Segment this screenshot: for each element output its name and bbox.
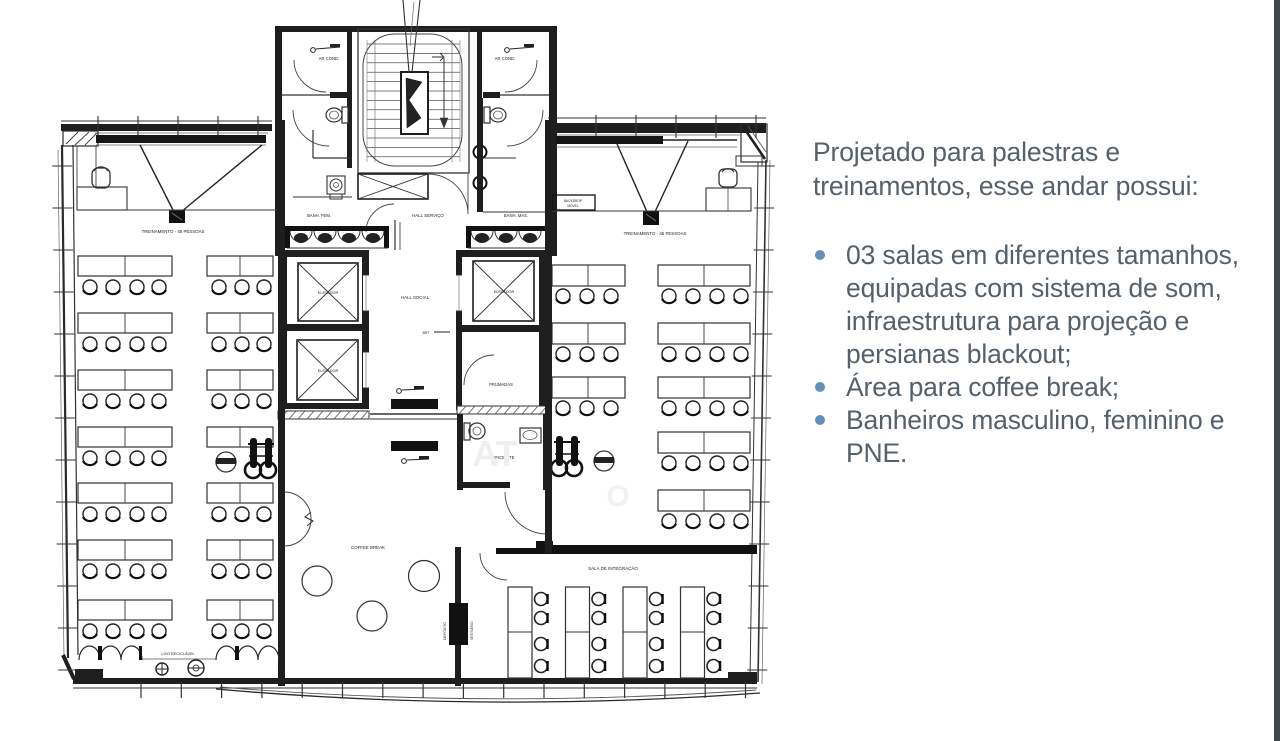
svg-text:VESTIÁRIO: VESTIÁRIO [470, 621, 474, 640]
svg-text:ELEVADOR: ELEVADOR [318, 291, 339, 295]
svg-text:MOVEL: MOVEL [567, 204, 578, 208]
svg-text:DEPÓSITO: DEPÓSITO [442, 622, 447, 640]
svg-text:PRUMADAS: PRUMADAS [489, 382, 513, 387]
svg-text:HALL SOCIAL: HALL SOCIAL [401, 295, 430, 300]
svg-text:ELEVADOR: ELEVADOR [318, 369, 339, 373]
svg-text:BACKDROP: BACKDROP [564, 199, 582, 203]
svg-text:AT: AT [472, 433, 517, 474]
svg-text:HALL SERVIÇO: HALL SERVIÇO [412, 213, 444, 218]
svg-text:TREINAMENTO - 45 PESSOAS: TREINAMENTO - 45 PESSOAS [142, 229, 205, 234]
svg-text:BRT: BRT [422, 331, 430, 335]
svg-text:TREINAMENTO - 45 PESSOAS: TREINAMENTO - 45 PESSOAS [624, 231, 687, 236]
svg-text:BANH. FEM.: BANH. FEM. [307, 213, 331, 218]
svg-text:SALA DE INTEGRAÇÃO: SALA DE INTEGRAÇÃO [588, 565, 638, 571]
svg-text:COFFEE BREAK: COFFEE BREAK [351, 545, 385, 550]
svg-text:ELEVADOR: ELEVADOR [494, 290, 515, 294]
svg-text:O: O [606, 480, 629, 513]
svg-text:BANH. MAS.: BANH. MAS. [504, 213, 528, 218]
svg-text:LIXO RECICLÁVEL: LIXO RECICLÁVEL [161, 652, 194, 656]
svg-text:AR COND.: AR COND. [319, 56, 339, 61]
svg-text:AR COND.: AR COND. [495, 56, 515, 61]
